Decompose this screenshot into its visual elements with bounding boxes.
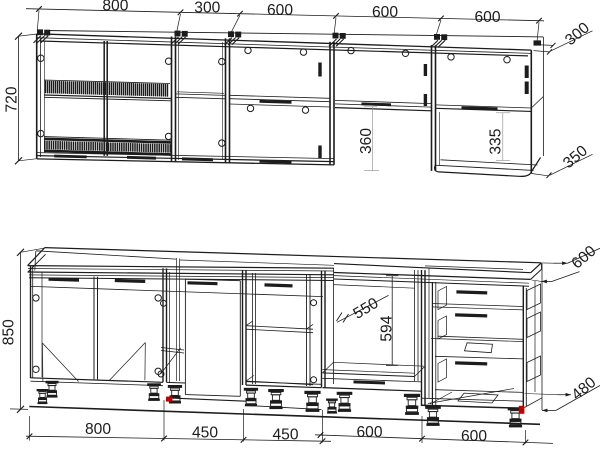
svg-text:850: 850 [0, 319, 17, 345]
svg-text:600: 600 [372, 4, 398, 21]
svg-text:800: 800 [102, 0, 128, 15]
svg-text:600: 600 [461, 428, 487, 445]
svg-text:450: 450 [272, 427, 298, 444]
svg-text:360: 360 [358, 128, 375, 154]
svg-text:600: 600 [267, 2, 293, 19]
svg-text:720: 720 [4, 86, 21, 112]
svg-text:600: 600 [356, 424, 382, 441]
svg-text:450: 450 [192, 424, 218, 441]
svg-text:300: 300 [194, 0, 220, 17]
svg-text:335: 335 [487, 128, 504, 154]
svg-text:800: 800 [85, 421, 111, 438]
svg-text:600: 600 [474, 9, 500, 26]
svg-text:594: 594 [379, 315, 396, 341]
